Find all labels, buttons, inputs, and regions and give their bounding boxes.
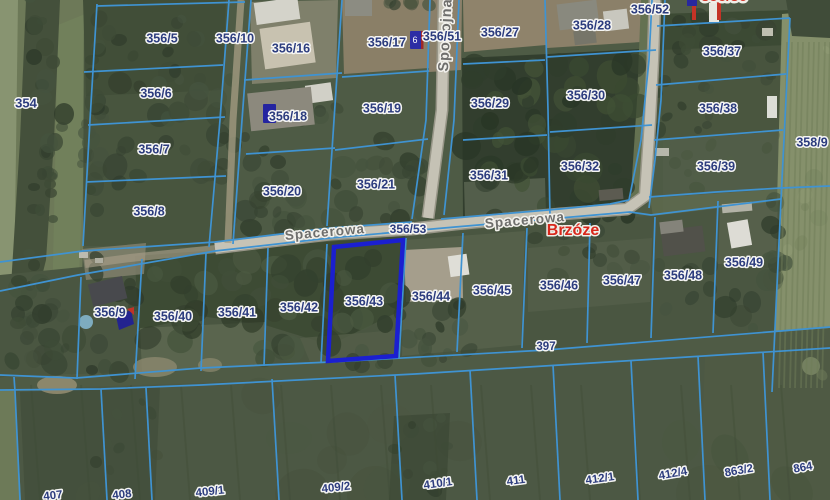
svg-text:356/41: 356/41 <box>218 305 256 319</box>
svg-text:408: 408 <box>112 488 133 500</box>
svg-text:356/38: 356/38 <box>699 101 737 115</box>
svg-text:356/21: 356/21 <box>357 177 395 191</box>
svg-text:356/27: 356/27 <box>481 25 519 39</box>
svg-text:356/47: 356/47 <box>603 273 641 287</box>
svg-text:354: 354 <box>15 95 37 110</box>
svg-text:356/17: 356/17 <box>368 35 406 49</box>
svg-text:356/52: 356/52 <box>631 2 669 16</box>
svg-text:356/45: 356/45 <box>473 283 511 297</box>
svg-text:356/28: 356/28 <box>573 18 611 32</box>
svg-text:356/42: 356/42 <box>280 300 318 314</box>
svg-text:356/32: 356/32 <box>561 159 599 173</box>
svg-text:356/6: 356/6 <box>140 86 171 100</box>
svg-text:356/16: 356/16 <box>272 41 310 55</box>
svg-text:356/7: 356/7 <box>138 142 169 156</box>
svg-text:356/40: 356/40 <box>154 309 192 323</box>
svg-text:6: 6 <box>412 35 417 45</box>
svg-text:397: 397 <box>536 341 555 353</box>
svg-text:356/43: 356/43 <box>345 294 383 308</box>
svg-text:356/49: 356/49 <box>725 255 763 269</box>
svg-text:356/20: 356/20 <box>263 184 301 198</box>
svg-text:356/51: 356/51 <box>423 29 461 43</box>
svg-text:356/46: 356/46 <box>540 278 578 292</box>
svg-text:356/19: 356/19 <box>363 101 401 115</box>
svg-text:356/44: 356/44 <box>412 289 450 303</box>
svg-text:356/10: 356/10 <box>216 31 254 45</box>
svg-text:356/39: 356/39 <box>697 159 735 173</box>
svg-text:356/9: 356/9 <box>94 305 125 319</box>
svg-text:356/8: 356/8 <box>133 204 164 218</box>
svg-text:407: 407 <box>43 489 63 500</box>
svg-text:356/31: 356/31 <box>470 168 508 182</box>
svg-text:356/36: 356/36 <box>701 0 747 5</box>
svg-text:356/48: 356/48 <box>664 268 702 282</box>
svg-text:356/30: 356/30 <box>567 88 605 102</box>
svg-text:356/5: 356/5 <box>146 31 177 45</box>
svg-text:356/53: 356/53 <box>390 222 427 236</box>
svg-text:Brzóze: Brzóze <box>547 222 600 239</box>
svg-text:356/29: 356/29 <box>471 96 509 110</box>
svg-text:356/18: 356/18 <box>269 109 307 123</box>
svg-text:358/9: 358/9 <box>796 135 827 149</box>
svg-text:356/37: 356/37 <box>703 44 741 58</box>
